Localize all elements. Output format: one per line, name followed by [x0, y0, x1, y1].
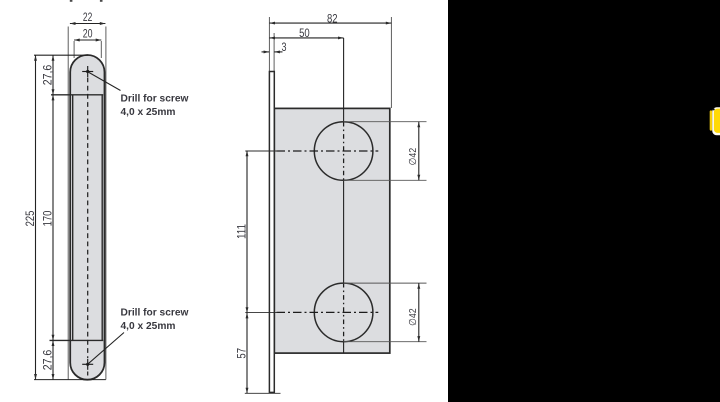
svg-text:4,0 x 25mm: 4,0 x 25mm: [121, 107, 176, 118]
svg-text:27,6: 27,6: [40, 64, 54, 85]
svg-text:111: 111: [234, 224, 248, 239]
svg-text:20: 20: [83, 26, 93, 40]
svg-text:4,0 x 25mm: 4,0 x 25mm: [121, 321, 176, 332]
svg-text:57: 57: [234, 348, 248, 359]
svg-text:50: 50: [299, 26, 310, 40]
svg-text:3: 3: [282, 40, 287, 54]
svg-text:Drill for screw: Drill for screw: [121, 94, 189, 105]
svg-text:∅42: ∅42: [408, 147, 419, 165]
svg-text:225: 225: [23, 210, 37, 226]
svg-text:∅42: ∅42: [408, 308, 419, 326]
svg-text:82: 82: [327, 11, 338, 25]
svg-text:27,6: 27,6: [40, 349, 54, 370]
svg-text:Drill for screw: Drill for screw: [121, 308, 189, 319]
svg-text:22: 22: [83, 10, 93, 24]
svg-text:170: 170: [40, 210, 54, 226]
